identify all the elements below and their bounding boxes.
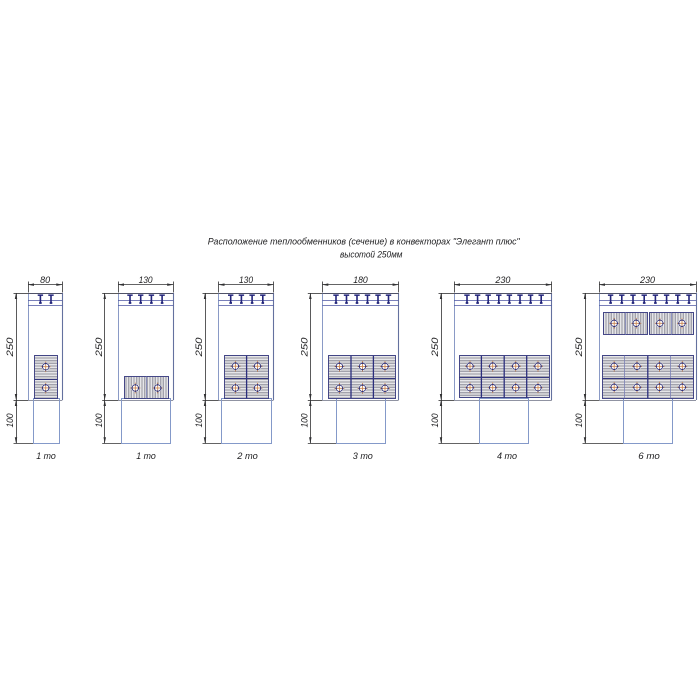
svg-text:Расположение теплообменников (: Расположение теплообменников (сечение) в… (208, 236, 521, 247)
svg-text:250: 250 (574, 337, 584, 357)
svg-text:2 то: 2 то (236, 451, 258, 462)
svg-text:высотой 250мм: высотой 250мм (340, 250, 403, 261)
svg-text:3 то: 3 то (353, 451, 374, 462)
svg-text:130: 130 (239, 275, 253, 285)
svg-text:1 то: 1 то (36, 451, 56, 462)
svg-text:80: 80 (40, 275, 50, 285)
svg-text:6 то: 6 то (638, 451, 660, 462)
svg-text:180: 180 (353, 275, 368, 285)
svg-text:230: 230 (494, 275, 510, 285)
svg-text:100: 100 (194, 413, 204, 427)
svg-text:4 то: 4 то (497, 451, 518, 462)
svg-text:250: 250 (5, 337, 15, 357)
svg-text:100: 100 (574, 413, 584, 427)
svg-text:100: 100 (430, 413, 440, 427)
svg-text:100: 100 (300, 413, 310, 427)
svg-text:230: 230 (639, 275, 655, 285)
svg-text:1 то: 1 то (136, 451, 156, 462)
svg-text:100: 100 (94, 413, 104, 427)
svg-text:100: 100 (5, 413, 15, 427)
svg-text:250: 250 (94, 337, 104, 357)
svg-text:250: 250 (194, 337, 204, 357)
svg-text:130: 130 (139, 275, 153, 285)
svg-text:250: 250 (430, 337, 440, 357)
svg-text:250: 250 (300, 337, 310, 357)
